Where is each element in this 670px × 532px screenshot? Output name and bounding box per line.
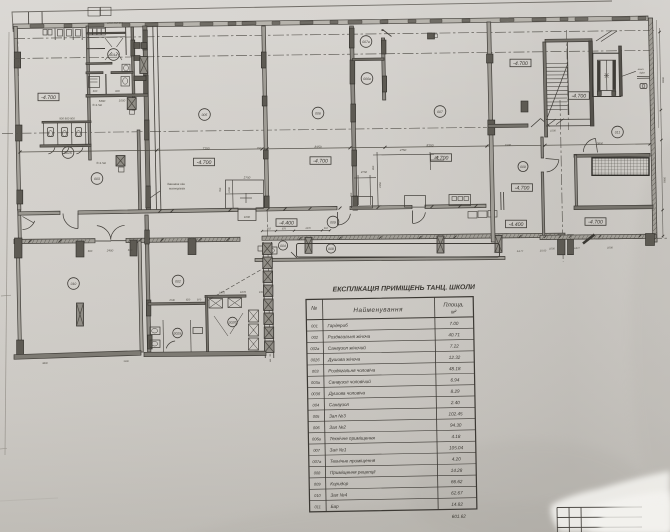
svg-text:900: 900 (350, 192, 353, 197)
svg-text:Зал №3: Зал №3 (329, 413, 346, 418)
svg-text:500: 500 (435, 156, 440, 159)
svg-text:1670: 1670 (305, 227, 311, 230)
svg-text:Площа,: Площа, (443, 302, 464, 308)
svg-text:-4.700: -4.700 (588, 220, 603, 226)
svg-text:2750: 2750 (399, 148, 407, 152)
svg-text:4.18: 4.18 (451, 434, 460, 439)
svg-text:006: 006 (315, 111, 321, 115)
svg-text:3×1.5м: 3×1.5м (92, 103, 102, 107)
svg-text:820: 820 (186, 299, 191, 302)
svg-text:Приміщення рецепції: Приміщення рецепції (330, 469, 376, 475)
svg-text:800: 800 (115, 90, 120, 93)
svg-text:40.71: 40.71 (448, 332, 460, 337)
svg-text:500: 500 (128, 249, 133, 252)
svg-text:7030: 7030 (169, 299, 175, 302)
svg-text:5480: 5480 (664, 177, 667, 183)
svg-text:Зал №2: Зал №2 (329, 425, 346, 430)
svg-text:009: 009 (520, 165, 526, 169)
svg-text:8150: 8150 (426, 144, 433, 148)
svg-text:Душова чоловіча: Душова чоловіча (328, 390, 366, 396)
svg-text:009: 009 (330, 220, 336, 224)
svg-text:14.77: 14.77 (494, 250, 501, 253)
svg-text:1675: 1675 (219, 292, 225, 295)
svg-text:14.77: 14.77 (517, 250, 524, 253)
svg-text:870: 870 (282, 227, 287, 230)
svg-text:3×1.5м: 3×1.5м (96, 161, 106, 165)
svg-text:900: 900 (372, 165, 375, 170)
svg-text:011: 011 (314, 504, 320, 509)
svg-text:-4.700: -4.700 (197, 160, 212, 166)
svg-text:ліфт: ліфт (638, 72, 645, 75)
svg-text:008: 008 (314, 470, 322, 475)
svg-text:Санвузол жіночий: Санвузол жіночий (328, 345, 366, 351)
svg-text:1477: 1477 (574, 247, 580, 250)
svg-text:010: 010 (71, 282, 77, 286)
svg-text:004: 004 (312, 402, 320, 407)
svg-text:14.82: 14.82 (451, 502, 463, 507)
svg-text:900 900 900: 900 900 900 (59, 117, 75, 121)
svg-text:007: 007 (437, 110, 443, 114)
svg-text:1950: 1950 (379, 182, 382, 188)
svg-text:8.29: 8.29 (451, 389, 460, 394)
svg-text:94.30: 94.30 (450, 423, 462, 428)
svg-text:102.45: 102.45 (448, 411, 463, 416)
svg-text:Технічне приміщення: Технічне приміщення (329, 435, 375, 441)
svg-text:-4.700: -4.700 (313, 159, 328, 165)
svg-text:006: 006 (313, 425, 321, 430)
svg-text:Гардероб: Гардероб (327, 323, 348, 328)
svg-text:1500: 1500 (550, 130, 556, 133)
svg-text:3800: 3800 (42, 362, 48, 365)
svg-text:6900: 6900 (662, 77, 665, 83)
svg-text:Зал №1: Зал №1 (330, 447, 347, 452)
svg-text:7.00: 7.00 (449, 321, 458, 326)
svg-text:2750: 2750 (360, 170, 368, 174)
svg-text:-4.400: -4.400 (509, 222, 524, 228)
svg-text:14.28: 14.28 (451, 468, 463, 473)
svg-text:Роздягальня жіноча: Роздягальня жіноча (328, 334, 371, 340)
svg-text:1000: 1000 (119, 99, 126, 103)
svg-text:1000: 1000 (244, 215, 251, 219)
svg-text:62.67: 62.67 (451, 490, 463, 495)
svg-text:1500: 1500 (123, 360, 129, 363)
svg-text:Зашивка ніш: Зашивка ніш (167, 182, 185, 186)
svg-text:105.04: 105.04 (449, 445, 464, 450)
svg-text:006а: 006а (312, 436, 322, 441)
svg-text:007а: 007а (312, 459, 322, 464)
svg-text:Санвузол чоловічий: Санвузол чоловічий (328, 379, 371, 385)
svg-text:Роздягальня чоловіча: Роздягальня чоловіча (328, 368, 375, 374)
svg-text:601.62: 601.62 (452, 514, 467, 519)
svg-text:8150: 8150 (314, 145, 321, 149)
svg-text:970: 970 (197, 298, 202, 301)
svg-text:-4.700: -4.700 (513, 61, 528, 67)
svg-text:1500: 1500 (505, 143, 512, 147)
svg-text:1200: 1200 (228, 187, 231, 193)
svg-text:Найменування: Найменування (353, 306, 403, 314)
svg-text:010: 010 (314, 493, 322, 498)
svg-text:003а: 003а (311, 380, 321, 385)
svg-text:2400: 2400 (106, 249, 114, 253)
svg-text:502: 502 (324, 227, 329, 230)
svg-text:003б: 003б (311, 391, 321, 396)
svg-text:001а: 001а (110, 53, 118, 57)
svg-text:1000: 1000 (549, 248, 555, 251)
svg-text:1670: 1670 (240, 291, 246, 294)
svg-text:10.00: 10.00 (540, 250, 547, 253)
svg-text:м²: м² (451, 309, 457, 315)
svg-text:002б: 002б (311, 357, 321, 362)
svg-text:3800: 3800 (597, 142, 604, 146)
svg-text:002а: 002а (174, 331, 182, 335)
svg-text:003: 003 (312, 369, 320, 374)
svg-text:Бар: Бар (331, 504, 340, 509)
svg-text:005: 005 (202, 113, 208, 117)
svg-text:600: 600 (93, 90, 98, 93)
svg-text:Санвузол: Санвузол (329, 402, 350, 407)
svg-text:001: 001 (311, 323, 318, 328)
svg-text:-4.700: -4.700 (571, 94, 586, 100)
svg-text:009: 009 (314, 482, 322, 487)
svg-text:005: 005 (313, 414, 321, 419)
svg-text:матеріалів: матеріалів (169, 187, 185, 191)
svg-text:7150: 7150 (202, 147, 209, 151)
svg-text:011: 011 (615, 130, 621, 134)
svg-text:750: 750 (257, 146, 262, 150)
svg-text:4.20: 4.20 (452, 457, 461, 462)
svg-text:004: 004 (280, 244, 286, 248)
svg-text:007: 007 (313, 448, 321, 453)
svg-text:002б: 002б (229, 320, 237, 324)
svg-text:2.40: 2.40 (450, 400, 460, 405)
svg-text:Душова жіноча: Душова жіноча (327, 357, 361, 363)
svg-text:-4.700: -4.700 (515, 186, 530, 192)
svg-text:7.22: 7.22 (450, 344, 459, 349)
svg-text:1000: 1000 (607, 247, 613, 250)
svg-text:002: 002 (175, 279, 181, 283)
svg-text:003: 003 (94, 177, 100, 181)
svg-text:500: 500 (88, 250, 93, 253)
svg-text:007а: 007а (362, 40, 370, 44)
svg-text:002: 002 (311, 335, 319, 340)
svg-text:006а: 006а (363, 77, 371, 81)
svg-text:-4.700: -4.700 (41, 95, 56, 101)
svg-text:1005 600 800: 1005 600 800 (107, 22, 123, 25)
svg-text:Коридор: Коридор (330, 481, 349, 486)
svg-text:48.18: 48.18 (449, 366, 461, 371)
svg-text:002а: 002а (310, 346, 320, 351)
svg-text:-4.400: -4.400 (279, 221, 294, 227)
svg-text:2750: 2750 (243, 176, 251, 180)
svg-text:Технічне приміщення: Технічне приміщення (330, 458, 376, 464)
svg-text:66.62: 66.62 (451, 479, 463, 484)
svg-text:502: 502 (267, 228, 272, 231)
svg-text:12.32: 12.32 (449, 355, 461, 360)
svg-text:Зал №4: Зал №4 (330, 492, 347, 497)
svg-text:6.94: 6.94 (450, 377, 459, 382)
svg-text:700: 700 (219, 187, 222, 192)
svg-text:008: 008 (328, 247, 334, 251)
svg-text:№: № (311, 306, 317, 312)
